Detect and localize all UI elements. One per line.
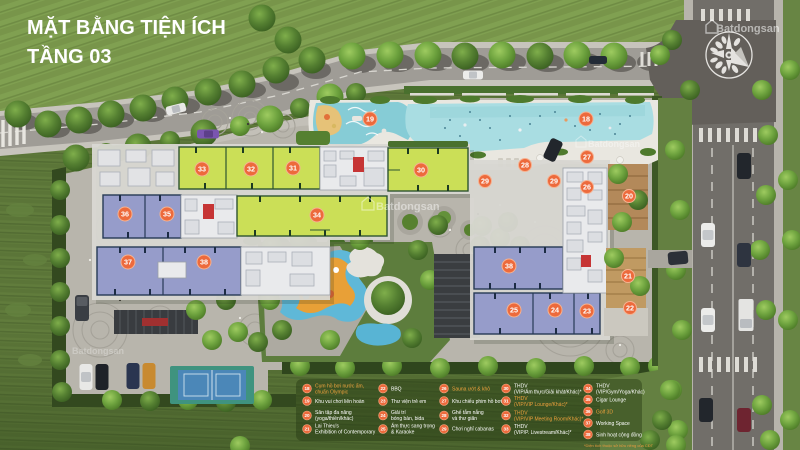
svg-text:38: 38 bbox=[200, 258, 208, 267]
svg-text:bóng bàn, bida: bóng bàn, bida bbox=[391, 416, 424, 422]
svg-text:32: 32 bbox=[247, 165, 255, 174]
svg-text:Sauna ướt & khô: Sauna ướt & khô bbox=[452, 387, 490, 393]
svg-text:36: 36 bbox=[121, 210, 129, 219]
svg-text:Thư viện trẻ em: Thư viện trẻ em bbox=[391, 399, 426, 405]
svg-text:33: 33 bbox=[503, 427, 509, 432]
svg-text:21: 21 bbox=[304, 427, 310, 432]
svg-text:37: 37 bbox=[124, 258, 132, 267]
svg-text:(VIP/VIP Lounge/Khác)*: (VIP/VIP Lounge/Khác)* bbox=[514, 402, 568, 408]
svg-text:20: 20 bbox=[304, 413, 310, 418]
svg-text:37: 37 bbox=[585, 421, 591, 426]
svg-text:30: 30 bbox=[417, 166, 425, 175]
svg-text:(VIP/P. Livestream/Khác)*: (VIP/P. Livestream/Khác)* bbox=[514, 430, 571, 436]
svg-text:31: 31 bbox=[289, 164, 297, 173]
svg-text:30: 30 bbox=[503, 386, 509, 391]
svg-text:*Diện tích thuộc sở hữu riêng: *Diện tích thuộc sở hữu riêng của CĐT bbox=[584, 443, 654, 448]
svg-text:22: 22 bbox=[380, 386, 386, 391]
svg-text:38: 38 bbox=[505, 262, 513, 271]
svg-text:36: 36 bbox=[585, 409, 591, 414]
svg-text:(VIP/Ẩm thực/Giải khát/Khác)*: (VIP/Ẩm thực/Giải khát/Khác)* bbox=[514, 389, 582, 396]
svg-text:TẦNG 03: TẦNG 03 bbox=[27, 45, 111, 68]
svg-text:Khu chiếu phim hồ bơi: Khu chiếu phim hồ bơi bbox=[452, 399, 502, 405]
svg-text:24: 24 bbox=[551, 306, 559, 315]
svg-text:35: 35 bbox=[163, 210, 171, 219]
svg-text:21: 21 bbox=[624, 272, 632, 281]
svg-text:Chơi nghỉ cabanas: Chơi nghỉ cabanas bbox=[452, 426, 494, 433]
svg-text:(yoga/thiền/khác): (yoga/thiền/khác) bbox=[315, 416, 354, 422]
svg-text:20: 20 bbox=[625, 192, 633, 201]
svg-text:34: 34 bbox=[313, 211, 321, 220]
svg-text:31: 31 bbox=[503, 399, 509, 404]
svg-text:Working Space: Working Space bbox=[596, 421, 630, 427]
svg-text:25: 25 bbox=[380, 427, 386, 432]
svg-text:29: 29 bbox=[481, 177, 489, 186]
svg-text:Sinh hoạt cộng đồng: Sinh hoạt cộng đồng bbox=[596, 433, 642, 439]
svg-text:chuẩn Olympic: chuẩn Olympic bbox=[315, 389, 349, 396]
svg-text:32: 32 bbox=[503, 413, 509, 418]
svg-text:Batdongsan: Batdongsan bbox=[716, 23, 780, 35]
svg-text:24: 24 bbox=[380, 413, 386, 418]
svg-text:(VIP/Gym/Yoga/Khác): (VIP/Gym/Yoga/Khác) bbox=[596, 390, 645, 396]
svg-text:23: 23 bbox=[583, 307, 591, 316]
svg-text:Batdongsan: Batdongsan bbox=[376, 201, 440, 213]
svg-text:19: 19 bbox=[366, 115, 374, 124]
svg-text:26: 26 bbox=[583, 183, 591, 192]
svg-text:23: 23 bbox=[380, 399, 386, 404]
svg-text:Ghế tắm nắng: Ghế tắm nắng bbox=[452, 409, 484, 416]
svg-text:18: 18 bbox=[304, 386, 310, 391]
svg-text:Batdongsan: Batdongsan bbox=[588, 139, 640, 149]
svg-text:38: 38 bbox=[585, 432, 591, 437]
svg-text:và thư giãn: và thư giãn bbox=[452, 416, 477, 422]
svg-text:18: 18 bbox=[582, 115, 590, 124]
svg-text:35: 35 bbox=[585, 397, 591, 402]
svg-text:28: 28 bbox=[441, 413, 447, 418]
svg-text:29: 29 bbox=[441, 427, 447, 432]
svg-text:26: 26 bbox=[441, 386, 447, 391]
svg-text:Cigar Lounge: Cigar Lounge bbox=[596, 398, 626, 404]
svg-text:(VIP/VIP Meeting Room/Khác)*: (VIP/VIP Meeting Room/Khác)* bbox=[514, 417, 583, 423]
svg-text:& Karaoke: & Karaoke bbox=[391, 430, 415, 436]
svg-text:25: 25 bbox=[510, 306, 518, 315]
svg-text:27: 27 bbox=[583, 153, 591, 162]
svg-text:MẶT BẰNG TIỆN ÍCH: MẶT BẰNG TIỆN ÍCH bbox=[27, 15, 226, 39]
svg-text:34: 34 bbox=[585, 386, 591, 391]
svg-text:Exhibition of Contemporary: Exhibition of Contemporary bbox=[315, 430, 376, 436]
svg-text:Golf 3D: Golf 3D bbox=[596, 410, 613, 416]
svg-text:29: 29 bbox=[550, 177, 558, 186]
svg-text:22: 22 bbox=[626, 304, 634, 313]
svg-text:28: 28 bbox=[521, 161, 529, 170]
svg-text:33: 33 bbox=[198, 165, 206, 174]
svg-text:Khu vui chơi liên hoàn: Khu vui chơi liên hoàn bbox=[315, 399, 365, 405]
svg-text:Batdongsan: Batdongsan bbox=[72, 346, 124, 356]
svg-text:27: 27 bbox=[441, 399, 447, 404]
svg-text:Ẩm thực sang trọng: Ẩm thực sang trọng bbox=[391, 423, 435, 430]
svg-text:BBQ: BBQ bbox=[391, 387, 402, 393]
svg-text:19: 19 bbox=[304, 399, 310, 404]
